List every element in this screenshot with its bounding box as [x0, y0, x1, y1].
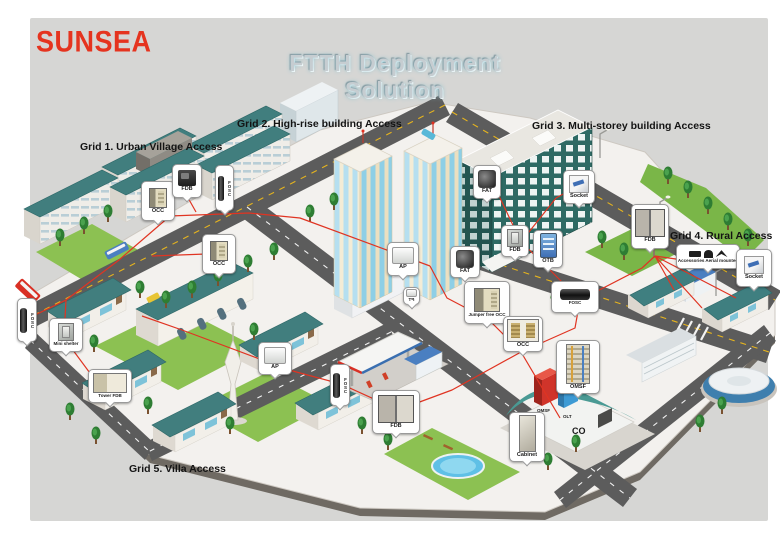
callout-fdb-urban: FDB — [172, 164, 202, 198]
terminal-box-icon — [406, 289, 417, 297]
grid2-label: Grid 2. High-rise building Access — [237, 118, 402, 130]
callout-occ-street: OCC — [202, 234, 236, 274]
callout-fdb-gas: FDB — [372, 390, 420, 434]
callout-ap-highrise: AP — [387, 242, 419, 276]
fiber-access-terminal-icon — [456, 250, 474, 268]
callout-aerial-accessories: Accessories Aerial mounted — [676, 244, 740, 269]
callout-cabinet: Cabinet — [509, 412, 545, 462]
olt-box-label: OLT — [563, 414, 572, 419]
splice-closure-icon — [20, 308, 27, 333]
double-frame-cabinet-icon — [507, 319, 539, 342]
dark-device-icon — [178, 170, 196, 186]
splice-closure-icon — [218, 176, 224, 201]
aerial-hardware-icon — [689, 250, 728, 258]
callout-tower-fdb: Tower FDB — [88, 369, 132, 403]
callout-socket-rural: Socket — [736, 249, 772, 287]
open-cabinet-icon — [210, 241, 228, 261]
light-device-icon — [392, 247, 414, 264]
callout-mini-shelter: Mini shelter — [49, 318, 83, 352]
callout-fosc-urban: FOSC — [215, 165, 234, 211]
grid4-label: Grid 4. Rural Access — [670, 230, 772, 242]
double-door-cabinet-icon — [378, 395, 414, 423]
optical-terminal-box-icon — [540, 233, 557, 258]
tall-cabinet-icon — [519, 415, 536, 452]
grid1-label: Grid 1. Urban Village Access — [80, 141, 222, 153]
callout-fosc-left: FOSC — [17, 298, 37, 342]
callout-fat-multistorey: FAT — [473, 165, 501, 199]
wide-cabinet-icon — [93, 373, 127, 393]
callout-fosc-center: FOSC — [551, 281, 599, 313]
cabinet-icon — [507, 229, 523, 247]
open-cabinet-icon — [149, 188, 167, 208]
callout-occ-co: OCC — [503, 316, 543, 352]
callout-fdb-multistorey: FDB — [501, 225, 529, 257]
callout-fdb-rural: FDB — [631, 204, 669, 249]
double-door-cabinet-icon — [635, 209, 665, 237]
grid5-label: Grid 5. Villa Access — [129, 463, 226, 475]
grid3-label: Grid 3. Multi-storey building Access — [532, 120, 711, 132]
ftth-deployment-poster: SUNSEA FTTH Deployment Solution — [0, 0, 780, 534]
callout-fosc-villa: FOSC — [330, 364, 350, 406]
sunsea-logo: SUNSEA — [36, 26, 152, 59]
light-device-icon — [264, 347, 286, 364]
splice-closure-icon — [333, 373, 340, 398]
callout-fat-highrise: FAT — [450, 246, 480, 278]
callout-omsf: OMSF — [556, 340, 600, 394]
cabinet-icon — [58, 323, 74, 341]
fiber-rack-icon — [566, 344, 590, 384]
open-cabinet-icon — [474, 288, 500, 312]
socket-icon — [569, 175, 589, 193]
fiber-access-terminal-icon — [478, 170, 496, 188]
page-title: FTTH Deployment Solution — [240, 50, 550, 104]
co-label: CO — [572, 426, 586, 436]
callout-tb: TB — [403, 287, 420, 305]
socket-icon — [744, 256, 764, 274]
callout-occ-urban: OCC — [141, 181, 175, 221]
omsf-box-label: OMSF — [537, 408, 550, 413]
callout-socket-multistorey: Socket — [563, 170, 595, 204]
callout-otb: OTB — [533, 230, 563, 268]
splice-closure-icon — [560, 289, 590, 300]
callout-ap-villa: AP — [258, 342, 292, 375]
